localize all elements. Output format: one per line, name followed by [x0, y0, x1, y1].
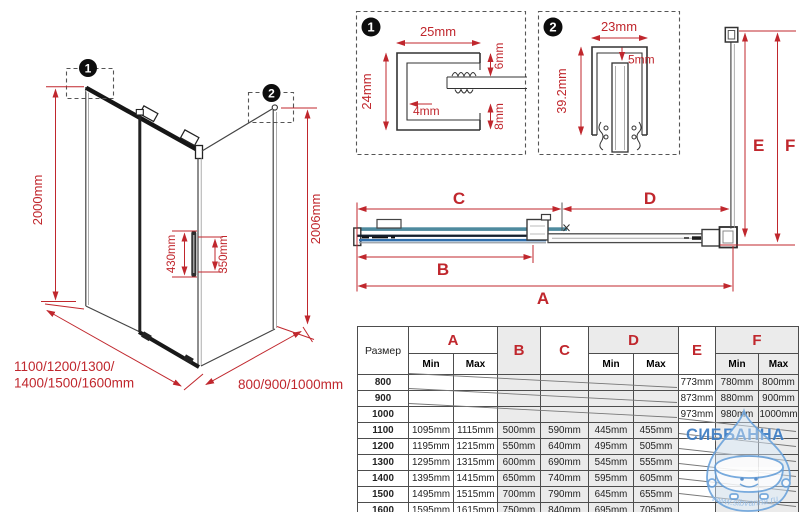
detail2-top-dim: 23mm	[601, 19, 637, 34]
side-bottom-edge	[201, 329, 275, 366]
size-value: 1195mm	[409, 439, 454, 455]
size-value: 1595mm	[409, 503, 454, 512]
F-min-header: Min	[716, 354, 759, 375]
rail-bracket-left	[377, 220, 401, 229]
plan-view: C D B A E F	[354, 28, 796, 309]
detail-1: 1 25mm 24mm 6mm 4mm 8mm	[357, 12, 528, 155]
rail-track	[357, 235, 550, 237]
dim-letter-F: F	[785, 136, 795, 155]
size-value: 640mm	[541, 439, 589, 455]
D-min-header: Min	[589, 354, 634, 375]
detail-2-number: 2	[549, 20, 556, 35]
size-value: 840mm	[541, 503, 589, 512]
size-value: 600mm	[498, 455, 541, 471]
dim-letter-E: E	[753, 136, 764, 155]
size-value: 1395mm	[409, 471, 454, 487]
clip-left	[599, 122, 603, 150]
size-value	[541, 375, 589, 391]
size-value: 780mm	[716, 375, 759, 391]
detail1-right-top-dim: 6mm	[492, 43, 506, 70]
height-left-dim: 2000mm	[30, 175, 45, 226]
size-value	[409, 375, 454, 391]
detail2-left-dim: 39.2mm	[555, 68, 569, 113]
size-value	[589, 375, 634, 391]
glass-clamp-serration	[452, 73, 476, 77]
size-label: 900	[358, 391, 409, 407]
dim-letter-C: C	[453, 189, 465, 208]
bathtub-rim	[715, 456, 783, 478]
D-max-header: Max	[634, 354, 679, 375]
wall-profile-top	[725, 28, 738, 43]
wall-profile-knob	[272, 105, 277, 110]
detail1-left-dim: 24mm	[359, 73, 374, 109]
clip-right	[637, 122, 641, 150]
size-value: 645mm	[589, 487, 634, 503]
size-value: 800mm	[759, 375, 799, 391]
depth-options: 800/900/1000mm	[238, 377, 343, 392]
size-value: 1415mm	[454, 471, 498, 487]
size-value: 1495mm	[409, 487, 454, 503]
corner-bracket	[702, 230, 721, 247]
width-options-line1: 1100/1200/1300/	[14, 359, 115, 374]
size-value	[541, 391, 589, 407]
size-value: 590mm	[541, 423, 589, 439]
handle-holes-dim: 350mm	[218, 235, 230, 273]
size-value: 1515mm	[454, 487, 498, 503]
size-value: 695mm	[589, 503, 634, 512]
corner-block	[720, 227, 738, 248]
size-value: 1315mm	[454, 455, 498, 471]
col-group-B: B	[498, 327, 541, 375]
A-min-header: Min	[409, 354, 454, 375]
col-group-E: E	[679, 327, 716, 375]
size-value: 545mm	[589, 455, 634, 471]
size-value	[498, 375, 541, 391]
col-group-D: D	[589, 327, 679, 354]
size-value: 790mm	[541, 487, 589, 503]
isometric-view: 1 2 2000mm 2006mm 430mm 350mm 1100/1200/…	[14, 59, 343, 392]
size-value	[409, 407, 454, 423]
height-right-dim: 2006mm	[308, 194, 323, 245]
roller-housing	[527, 220, 548, 241]
size-value	[498, 391, 541, 407]
size-label: 1400	[358, 471, 409, 487]
dim-letter-A: A	[537, 289, 549, 308]
size-label: 1500	[358, 487, 409, 503]
detail1-top-dim: 25mm	[420, 24, 456, 39]
eye-left	[740, 477, 744, 481]
size-value: 1295mm	[409, 455, 454, 471]
col-group-F: F	[716, 327, 799, 354]
size-value	[409, 391, 454, 407]
side-top-edge	[202, 109, 272, 151]
A-max-header: Max	[454, 354, 498, 375]
size-value	[454, 407, 498, 423]
size-label: 1200	[358, 439, 409, 455]
size-value: 495mm	[589, 439, 634, 455]
size-value	[454, 391, 498, 407]
size-label: 1100	[358, 423, 409, 439]
size-value: 550mm	[498, 439, 541, 455]
detail-1-number: 1	[367, 20, 374, 35]
size-value: 445mm	[589, 423, 634, 439]
detail-2: 2 23mm 39.2mm 5mm	[539, 12, 680, 155]
F-max-header: Max	[759, 354, 799, 375]
eye-right	[754, 477, 758, 481]
corner-post	[196, 146, 203, 159]
detail1-inner-dim: 4mm	[413, 104, 440, 118]
size-value: 1215mm	[454, 439, 498, 455]
detail2-inner-dim: 5mm	[628, 53, 655, 67]
size-value	[589, 391, 634, 407]
glass-post	[612, 63, 628, 152]
size-value	[634, 375, 679, 391]
size-value	[541, 407, 589, 423]
size-value: 595mm	[589, 471, 634, 487]
size-value: 1115mm	[454, 423, 498, 439]
size-column-header: Размер	[358, 327, 409, 375]
shower-enclosure-spec-sheet: 1 2 2000mm 2006mm 430mm 350mm 1100/1200/…	[0, 0, 800, 512]
size-value: 773mm	[679, 375, 716, 391]
dim-letter-B: B	[437, 260, 449, 279]
size-value: 740mm	[541, 471, 589, 487]
callout-2-number: 2	[268, 87, 275, 101]
size-value: 650mm	[498, 471, 541, 487]
handle-length-dim: 430mm	[166, 235, 178, 273]
size-label: 800	[358, 375, 409, 391]
size-value: 750mm	[498, 503, 541, 512]
col-group-C: C	[541, 327, 589, 375]
size-label: 1600	[358, 503, 409, 512]
size-value	[454, 375, 498, 391]
col-group-A: A	[409, 327, 498, 354]
watermark-logo: www.sibvanna.ru	[660, 400, 800, 512]
size-value: 1095mm	[409, 423, 454, 439]
fixed-glass-bottom	[359, 239, 546, 242]
top-rail	[86, 88, 197, 150]
size-value: 1615mm	[454, 503, 498, 512]
size-label: 1300	[358, 455, 409, 471]
detail1-right-bottom-dim: 8mm	[492, 103, 506, 130]
size-value: 700mm	[498, 487, 541, 503]
size-value	[589, 407, 634, 423]
callout-1-number: 1	[85, 62, 92, 76]
dim-letter-D: D	[644, 189, 656, 208]
width-options-line2: 1400/1500/1600mm	[14, 376, 134, 391]
size-value: 690mm	[541, 455, 589, 471]
table-row: 800773mm780mm800mm	[358, 375, 799, 391]
size-label: 1000	[358, 407, 409, 423]
size-value	[498, 407, 541, 423]
size-value: 500mm	[498, 423, 541, 439]
front-bottom-edge	[86, 306, 140, 332]
